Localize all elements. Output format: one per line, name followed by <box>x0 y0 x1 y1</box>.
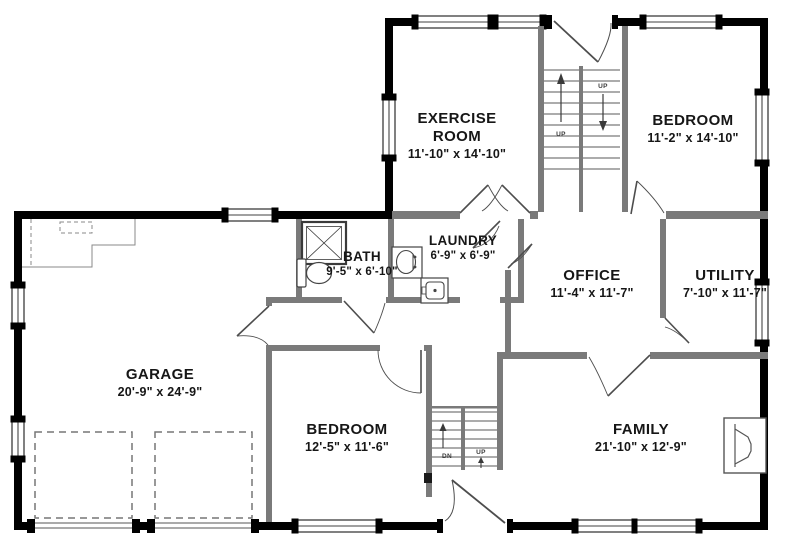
wall-stair-left <box>538 26 544 212</box>
room-name: UTILITY <box>683 267 767 285</box>
room-name: LAUNDRY <box>429 233 497 249</box>
wall-mid-3 <box>666 211 768 219</box>
stair-dn-label: DN <box>442 453 452 460</box>
room-name: OFFICE <box>550 267 633 285</box>
window-wing-left <box>382 94 396 161</box>
room-label-bedroom-upper: BEDROOM 11'-2" x 14'-10" <box>647 112 738 146</box>
room-dims: 7'-10" x 11'-7" <box>683 285 767 301</box>
room-label-exercise: EXERCISE ROOM 11'-10" x 14'-10" <box>402 110 512 162</box>
room-name: GARAGE <box>118 366 203 384</box>
exercise-double-door <box>460 185 530 213</box>
window-foyer-top <box>492 15 546 29</box>
fireplace <box>724 418 766 473</box>
door-jamb-tick <box>424 473 432 483</box>
garage-entry-door <box>237 306 269 345</box>
wall-laundry-right <box>518 219 524 303</box>
stair-up-label-left: UP <box>556 131 566 138</box>
wall-left <box>14 211 22 530</box>
entry-door-top <box>546 15 618 62</box>
wall-family-top-1 <box>497 352 587 359</box>
room-name: BEDROOM <box>305 421 389 439</box>
wall-bedroom-top-1 <box>266 345 380 351</box>
stair-up-label-right: UP <box>598 83 608 90</box>
bedroom-lower-door <box>378 350 421 393</box>
window-garage-top <box>222 208 278 222</box>
wall-family-left <box>497 359 503 470</box>
stair-up-label-lower: UP <box>476 449 486 456</box>
room-dims: 6'-9" x 6'-9" <box>429 249 497 264</box>
stairs-lower: DN UP <box>432 406 497 470</box>
room-label-bath: BATH 9'-5" x 6'-10" <box>326 249 398 280</box>
room-dims: 9'-5" x 6'-10" <box>326 265 398 280</box>
room-dims: 11'-10" x 14'-10" <box>402 146 512 162</box>
floor-plan: UP UP DN UP <box>0 0 798 542</box>
wall-family-top-2 <box>650 352 768 359</box>
wall-garage-top <box>14 211 393 219</box>
wall-garage-right-2 <box>266 348 272 522</box>
room-name: BEDROOM <box>647 112 738 130</box>
wall-hall-link <box>266 297 302 303</box>
wall-office-utility <box>660 219 666 318</box>
room-label-utility: UTILITY 7'-10" x 11'-7" <box>683 267 767 301</box>
utility-door <box>665 318 689 343</box>
wall-bath-bottom-2 <box>386 297 394 303</box>
window-garage-left-1 <box>11 282 25 329</box>
wall-bedroom-right-1 <box>426 345 432 473</box>
room-dims: 11'-2" x 14'-10" <box>647 130 738 146</box>
window-exercise-top <box>412 15 494 29</box>
floor-plan-drawing: UP UP DN UP <box>0 0 798 542</box>
window-bedroom-top <box>640 15 722 29</box>
stairs-upper: UP UP <box>544 66 620 212</box>
laundry-fixtures <box>421 278 448 303</box>
garage-door-outlines <box>35 432 252 518</box>
wall-mid-2 <box>530 211 538 219</box>
room-name: BATH <box>326 249 398 265</box>
window-family-bottom <box>572 519 702 533</box>
garage-nook <box>22 219 135 267</box>
laundry-sink <box>421 278 448 303</box>
garage-bay-right <box>155 432 252 518</box>
room-dims: 21'-10" x 12'-9" <box>595 439 687 455</box>
room-label-bedroom-lower: BEDROOM 12'-5" x 11'-6" <box>305 421 389 455</box>
garage-bay-left <box>35 432 132 518</box>
bedroom-upper-door <box>631 181 664 214</box>
room-name: FAMILY <box>595 421 687 439</box>
room-dims: 11'-4" x 11'-7" <box>550 285 633 301</box>
window-garage-left-2 <box>11 416 25 462</box>
entry-door-bottom <box>437 480 513 533</box>
wall-mid-1 <box>392 211 460 219</box>
wall-bedroom-right-2 <box>426 483 432 497</box>
bath-door <box>344 301 385 333</box>
room-label-laundry: LAUNDRY 6'-9" x 6'-9" <box>429 233 497 264</box>
window-bedroom-lower <box>292 519 382 533</box>
room-label-garage: GARAGE 20'-9" x 24'-9" <box>118 366 203 400</box>
wall-laundry-bottom-2 <box>500 297 524 303</box>
wall-stair-right <box>622 26 628 212</box>
family-door <box>589 355 650 396</box>
wall-bath-bottom-1 <box>296 297 342 303</box>
room-label-family: FAMILY 21'-10" x 12'-9" <box>595 421 687 455</box>
room-name: EXERCISE ROOM <box>402 110 512 146</box>
room-dims: 20'-9" x 24'-9" <box>118 384 203 400</box>
window-bedroom-right <box>755 89 769 166</box>
room-label-office: OFFICE 11'-4" x 11'-7" <box>550 267 633 301</box>
room-dims: 12'-5" x 11'-6" <box>305 439 389 455</box>
wall-office-left <box>505 270 511 358</box>
